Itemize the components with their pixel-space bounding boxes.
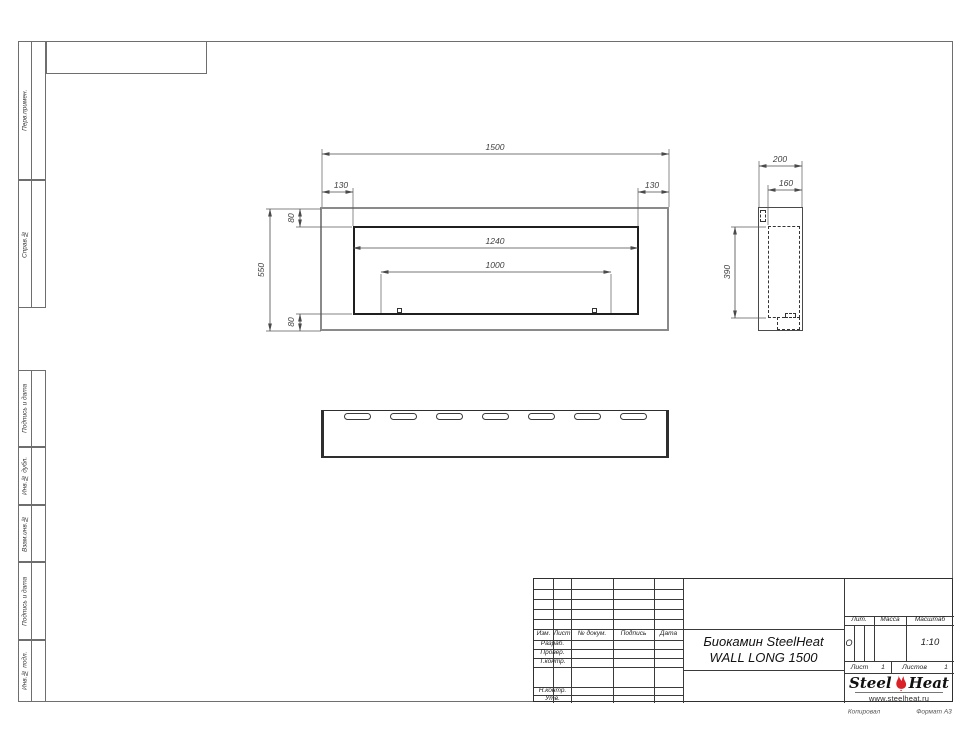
side-view-hidden-cavity xyxy=(768,226,800,318)
side-view-burner-tray xyxy=(777,317,800,330)
sheet-label: Лист xyxy=(844,664,875,671)
sidebar-label: Подпись и дата xyxy=(19,371,31,446)
sidebar-box-sprav-n: Справ.№ xyxy=(18,180,46,308)
flame-icon xyxy=(894,674,908,691)
sheets-label: Листов xyxy=(891,664,938,671)
vent-slot xyxy=(620,413,647,420)
sidebar-divider xyxy=(31,448,32,504)
document-title-line2: WALL LONG 1500 xyxy=(710,651,818,664)
dim-label-overall-width: 1500 xyxy=(486,143,505,152)
footer-format: Формат А3 xyxy=(916,709,952,716)
sidebar-box-inv-podl: Инв.№ подл. xyxy=(18,640,46,702)
dim-label-opening-height: 390 xyxy=(723,265,732,279)
footer-copied-by: Копировал xyxy=(848,709,880,716)
burner-mount-right xyxy=(592,308,597,313)
company-logo: Steel Heat www.steelheat.ru xyxy=(844,673,954,703)
scale-value: 1:10 xyxy=(906,625,954,661)
row-nkontr: Н.контр. xyxy=(534,687,571,695)
sidebar-box-perv-primen: Перв.примен. xyxy=(18,41,46,180)
sidebar-box-podpis-data-1: Подпись и дата xyxy=(18,370,46,447)
sidebar-divider xyxy=(31,181,32,307)
vent-slot xyxy=(436,413,463,420)
lit-value: О xyxy=(844,625,854,661)
sidebar-box-inv-dubl: Инв.№ дубл. xyxy=(18,447,46,505)
sidebar-divider xyxy=(31,641,32,701)
dim-label-inner-depth: 160 xyxy=(779,179,793,188)
document-title-line1: Биокамин SteelHeat xyxy=(703,635,823,648)
col-izm: Изм. xyxy=(534,629,553,640)
row-prover: Провер. xyxy=(534,649,571,658)
vent-slot xyxy=(390,413,417,420)
dim-label-overall-height: 550 xyxy=(257,263,266,277)
sidebar-divider xyxy=(31,371,32,446)
row-razrab: Разраб. xyxy=(534,640,571,649)
burner-mount-left xyxy=(397,308,402,313)
sidebar-divider xyxy=(31,506,32,561)
title-block: Изм. Лист № докум. Подпись Дата Разраб. … xyxy=(533,578,953,702)
vent-slot xyxy=(528,413,555,420)
sheet-number: 1 xyxy=(875,664,891,671)
sheets-cell: Листов 1 xyxy=(891,661,954,673)
sidebar-label: Взам.инв.№ xyxy=(19,506,31,561)
side-view-burner-lip xyxy=(785,313,796,318)
drawing-sheet: Перв.примен. Справ.№ Подпись и дата Инв.… xyxy=(0,0,970,749)
sidebar-divider xyxy=(31,563,32,639)
mass-header: Масса xyxy=(874,616,906,625)
sidebar-box-vzam-inv: Взам.инв.№ xyxy=(18,505,46,562)
row-tkontr: Т.контр. xyxy=(534,658,571,667)
top-left-stamp-box xyxy=(46,41,207,74)
logo-text-steel: Steel xyxy=(849,676,892,691)
sidebar-label: Инв.№ дубл. xyxy=(19,448,31,504)
vent-slot xyxy=(482,413,509,420)
dim-label-opening-width: 1240 xyxy=(486,237,505,246)
vent-slot xyxy=(344,413,371,420)
side-view-hidden-bracket xyxy=(760,210,766,222)
logo-underline xyxy=(855,692,943,693)
dim-label-burner-width: 1000 xyxy=(486,261,505,270)
sheets-total: 1 xyxy=(938,664,954,671)
dim-label-top-border: 80 xyxy=(287,213,296,222)
vent-slot xyxy=(574,413,601,420)
col-list: Лист xyxy=(553,629,571,640)
sidebar-divider xyxy=(31,42,32,179)
row-utv: Утв. xyxy=(534,695,571,703)
dim-label-bottom-border: 80 xyxy=(287,317,296,326)
col-doc-num: № докум. xyxy=(571,629,613,640)
sidebar-label: Инв.№ подл. xyxy=(19,641,31,701)
sheet-cell: Лист 1 xyxy=(844,661,891,673)
dim-label-margin-right: 130 xyxy=(645,181,659,190)
sidebar-box-podpis-data-2: Подпись и дата xyxy=(18,562,46,640)
scale-header: Масштаб xyxy=(906,616,954,625)
col-podpis: Подпись xyxy=(613,629,654,640)
logo-website: www.steelheat.ru xyxy=(869,694,929,703)
dim-label-margin-left: 130 xyxy=(334,181,348,190)
sidebar-label: Подпись и дата xyxy=(19,563,31,639)
col-data: Дата xyxy=(654,629,683,640)
sidebar-label: Справ.№ xyxy=(19,181,31,307)
logo-row: Steel Heat xyxy=(849,674,949,691)
lit-header: Лит. xyxy=(844,616,874,625)
sidebar-label: Перв.примен. xyxy=(19,42,31,179)
document-title: Биокамин SteelHeat WALL LONG 1500 xyxy=(683,629,844,670)
dim-label-depth: 200 xyxy=(773,155,787,164)
logo-text-heat: Heat xyxy=(909,676,949,691)
